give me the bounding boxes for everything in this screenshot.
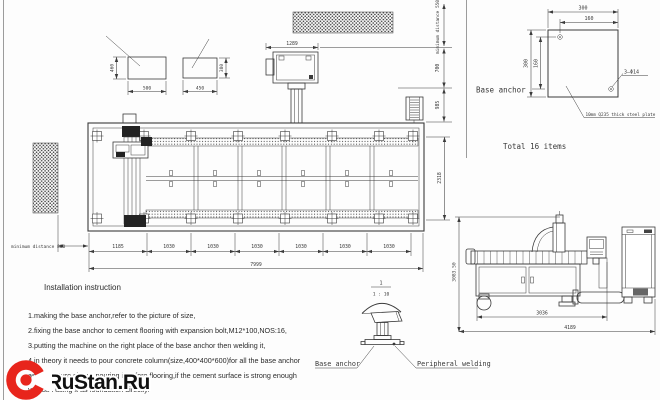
plan-dimensions: 2318 1185 1030 1030 1030 1030 1030 1030 … [11,137,450,272]
exhaust-duct [577,292,624,303]
dim-plate-width-inner: 160 [584,16,593,22]
dim-plate-width-outer: 300 [578,6,587,12]
anchor-block-2 [183,58,217,78]
dim-seg-2: 1030 [207,244,219,250]
machine-plan-view [88,114,424,231]
dim-block2-height: 380 [219,64,225,73]
dim-700: 700 [435,64,441,73]
clearance-hatch-top [293,12,393,33]
clearance-hatch-left [33,143,58,213]
base-anchor-detail-view: 300 160 300 160 3—Φ14 10mm Q235 thick st… [476,6,656,151]
dim-plate-height-outer: 300 [524,59,530,68]
anchor-plate [548,30,618,97]
laser-head [553,223,565,252]
small-cabinet [406,97,423,120]
min-distance-left-label: minimum distance 800 [11,244,65,250]
foot-detail-view: 1 1 : 10 Base anchor Peripheral welding [315,281,491,369]
instruction-line-1: 1.making the base anchor,refer to the pi… [28,311,195,320]
peripheral-welding-label: Peripheral welding [417,360,491,368]
installation-drawing: 300 160 300 160 3—Φ14 10mm Q235 thick st… [0,0,660,400]
dim-block1-width: 500 [143,86,152,92]
machine-side-view: 3083.50 [452,211,656,335]
dim-seg-1: 1030 [163,244,175,250]
foot-base-anchor-label: Base anchor [315,360,360,368]
dim-985: 985 [435,101,441,110]
top-clearance-area: minimum distance 550 1289 700 985 [266,0,452,123]
total-items-label: Total 16 items [503,142,566,151]
anchor-block-views: 460 500 380 450 [106,36,230,95]
instruction-line-4: 4.in theory it needs to pour concrete co… [28,356,301,365]
dim-block2-width: 450 [196,86,205,92]
dim-seg-4: 1030 [295,244,307,250]
instruction-line-3: 3.putting the machine on the right place… [28,341,265,350]
hole-count-note: 3—Φ14 [624,70,639,76]
watermark-brand-text: RuStan.Ru [47,371,150,394]
dim-block1-height: 460 [110,64,116,73]
dim-side-outer-width: 4189 [564,325,576,331]
dim-depth: 2318 [437,172,443,184]
min-distance-top-label: minimum distance 550 [435,0,441,54]
base-anchor-label: Base anchor [476,86,526,95]
dim-seg-6: 1030 [383,244,395,250]
dim-side-inner-width: 3036 [536,311,548,317]
instruction-line-2: 2.fixing the base anchor to cement floor… [28,326,287,335]
drawing-art: 300 160 300 160 3—Φ14 10mm Q235 thick st… [4,0,656,400]
laser-source-cabinet [622,227,655,297]
dim-seg-5: 1030 [339,244,351,250]
dim-side-height: 3083.50 [452,262,458,282]
dim-seg-0: 1185 [112,244,124,250]
dim-seg-3: 1030 [251,244,263,250]
dim-total-length: 7999 [250,262,262,268]
machine-table [471,251,587,264]
dim-beam-width: 1289 [286,41,298,47]
machine-body [476,264,580,296]
rustan-watermark: RuStan.Ru [11,365,150,395]
plate-material-note: 10mm Q235 thick steel plate [586,112,656,118]
dim-plate-height-inner: 160 [534,59,540,68]
scale-denominator: 1 : 10 [373,292,390,298]
control-panel [587,237,606,258]
instructions-title: Installation instruction [44,283,121,292]
scale-numerator: 1 [379,281,382,287]
